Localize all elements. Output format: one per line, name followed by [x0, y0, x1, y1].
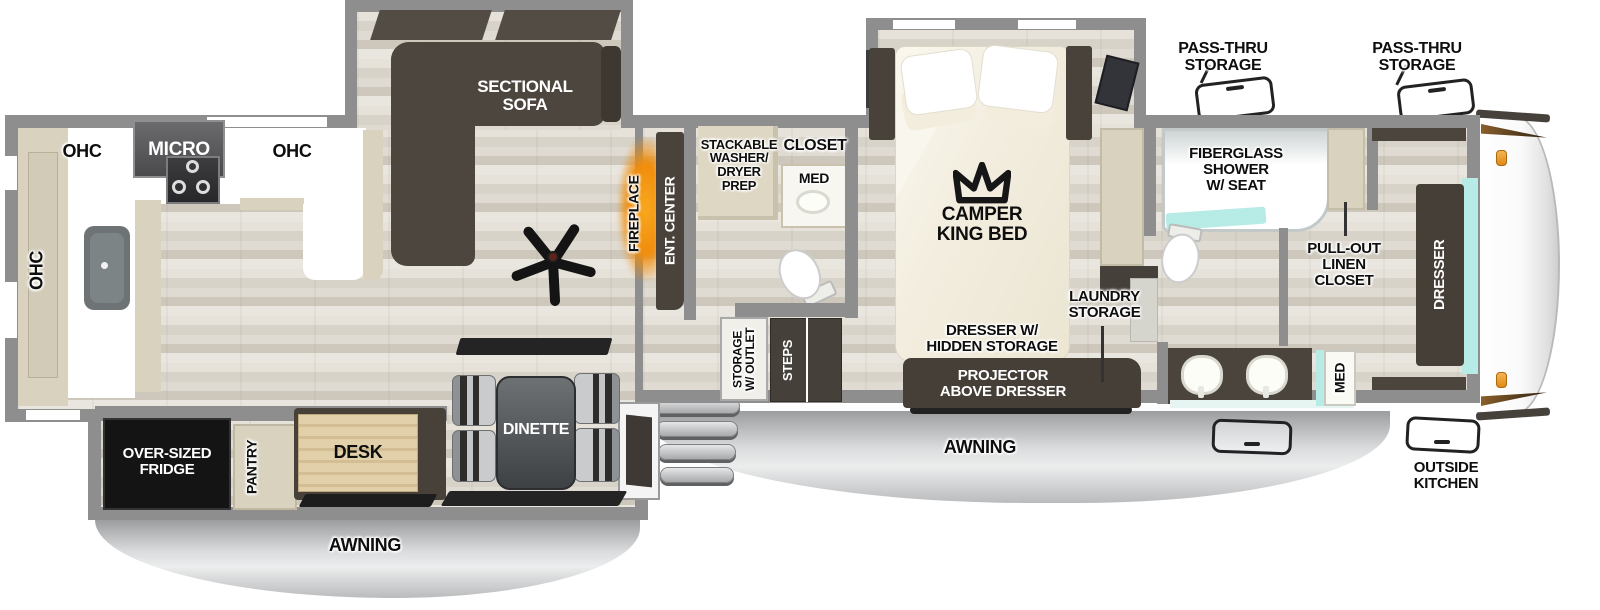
- front-window-ledge-bottom: [1372, 377, 1466, 390]
- bed-pillow-left: [899, 47, 979, 116]
- kitchen-cabinet-face-top: [240, 198, 304, 210]
- bath-toilet: [1153, 220, 1215, 290]
- laundry-storage-label: LAUNDRY STORAGE: [1042, 284, 1167, 326]
- microwave-label: MICRO: [133, 138, 225, 162]
- sectional-sofa-arm: [601, 46, 621, 122]
- crown-icon: [953, 162, 1011, 204]
- storage-outlet-label: STORAGE W/ OUTLET: [720, 317, 768, 401]
- fifth-wheel-floorplan: AWNING AWNING PASS-THRU STORAGE PASS-THR…: [0, 0, 1600, 610]
- bed-pillow-right: [977, 44, 1060, 115]
- dinette-chair-4: [574, 428, 620, 482]
- front-window-ledge-top: [1372, 128, 1466, 141]
- awning-right-label: AWNING: [920, 434, 1040, 460]
- closet-label: CLOSET: [776, 134, 854, 158]
- med-mid-label: MED: [781, 168, 847, 188]
- ohc-top-left-label: OHC: [56, 138, 108, 164]
- outside-kitchen-label: OUTSIDE KITCHEN: [1398, 456, 1494, 496]
- baggage-door-icon: [1211, 419, 1292, 456]
- linen-closet: [1327, 128, 1365, 210]
- kitchen-ohc-left-label: OHC: [14, 232, 60, 308]
- midbath-bottom-wall: [735, 303, 858, 317]
- stove-burner-2: [172, 180, 186, 194]
- nightstand-right: [1066, 46, 1092, 140]
- baggage-door-handle: [1244, 442, 1260, 446]
- dinette-mat-bottom: [441, 491, 628, 506]
- pass-thru-left-label: PASS-THRU STORAGE: [1158, 36, 1288, 80]
- outside-kitchen-door-icon: [1405, 416, 1481, 454]
- window-bed-slide-1: [893, 20, 955, 29]
- sectional-sofa-label: SECTIONAL SOFA: [458, 72, 592, 120]
- front-dresser-label: DRESSER: [1416, 190, 1464, 360]
- shower-label: FIBERGLASS SHOWER W/ SEAT: [1166, 140, 1306, 200]
- ohc-top-right-label: OHC: [264, 138, 320, 164]
- pull-out-linen-label: PULL-OUT LINEN CLOSET: [1292, 234, 1396, 296]
- vanity-faucet-right: [1263, 386, 1269, 398]
- dinette-mat-top: [456, 338, 613, 355]
- vanity-left-wall: [1157, 342, 1168, 404]
- marker-light-bottom-icon: [1496, 372, 1507, 388]
- entry-step-4: [660, 467, 734, 483]
- pass-thru-right-label: PASS-THRU STORAGE: [1352, 36, 1482, 80]
- ent-center-label: ENT. CENTER: [656, 140, 684, 302]
- med-right-teal-edge: [1316, 350, 1324, 406]
- ceiling-fan-icon: [513, 222, 593, 302]
- oversized-fridge-label: OVER-SIZED FRIDGE: [105, 440, 229, 484]
- sofa-slide-window-1: [370, 10, 492, 40]
- kitchen-faucet-icon: [101, 262, 108, 269]
- midbath-sink: [796, 190, 830, 214]
- nightstand-left: [869, 48, 895, 140]
- awning-left-label: AWNING: [305, 532, 425, 558]
- stove-burner-3: [196, 180, 210, 194]
- entry-door: [626, 415, 652, 488]
- dinette-chair-3: [574, 373, 620, 424]
- projector-label: PROJECTOR ABOVE DRESSER: [918, 364, 1088, 404]
- steps-label: STEPS: [770, 320, 806, 400]
- desk-mat: [299, 494, 438, 507]
- window-rear-left-1: [5, 156, 17, 190]
- interior-steps-divider: [806, 318, 808, 402]
- bath-divider-wall: [1279, 228, 1288, 346]
- fireplace-label: FIREPLACE: [618, 158, 650, 270]
- desk-label: DESK: [306, 438, 410, 466]
- camper-king-bed-label: CAMPER KING BED: [912, 202, 1052, 248]
- kitchen-peninsula: [303, 204, 365, 280]
- bedroom-wardrobe: [1100, 128, 1144, 266]
- kitchen-peninsula-edge: [363, 130, 383, 280]
- window-bed-slide-2: [1018, 20, 1076, 29]
- pantry-label: PANTRY: [233, 426, 271, 508]
- entry-step-3: [658, 444, 736, 460]
- kitchen-sink-basin: [90, 233, 124, 303]
- front-dresser-top: [1462, 178, 1478, 374]
- vanity-faucet-left: [1198, 386, 1204, 398]
- entry-step-2: [656, 421, 738, 437]
- outside-kitchen-door-handle: [1434, 440, 1450, 444]
- washer-dryer-label: STACKABLE WASHER/ DRYER PREP: [694, 132, 784, 198]
- kitchen-cabinet-face-left: [135, 200, 161, 392]
- med-right-label: MED: [1324, 352, 1356, 404]
- window-rear-top: [207, 117, 327, 127]
- dinette-chair-1: [452, 375, 496, 426]
- marker-light-top-icon: [1496, 150, 1507, 166]
- window-rear-bottom: [26, 410, 80, 420]
- dinette-label: DINETTE: [498, 418, 574, 442]
- laundry-storage-leader: [1101, 326, 1104, 382]
- dinette-chair-2: [452, 430, 496, 482]
- bedroom-bath-wall: [1144, 128, 1156, 236]
- front-cap: [1477, 116, 1560, 414]
- pull-out-linen-leader: [1344, 202, 1347, 236]
- sofa-slide-window-2: [495, 10, 621, 40]
